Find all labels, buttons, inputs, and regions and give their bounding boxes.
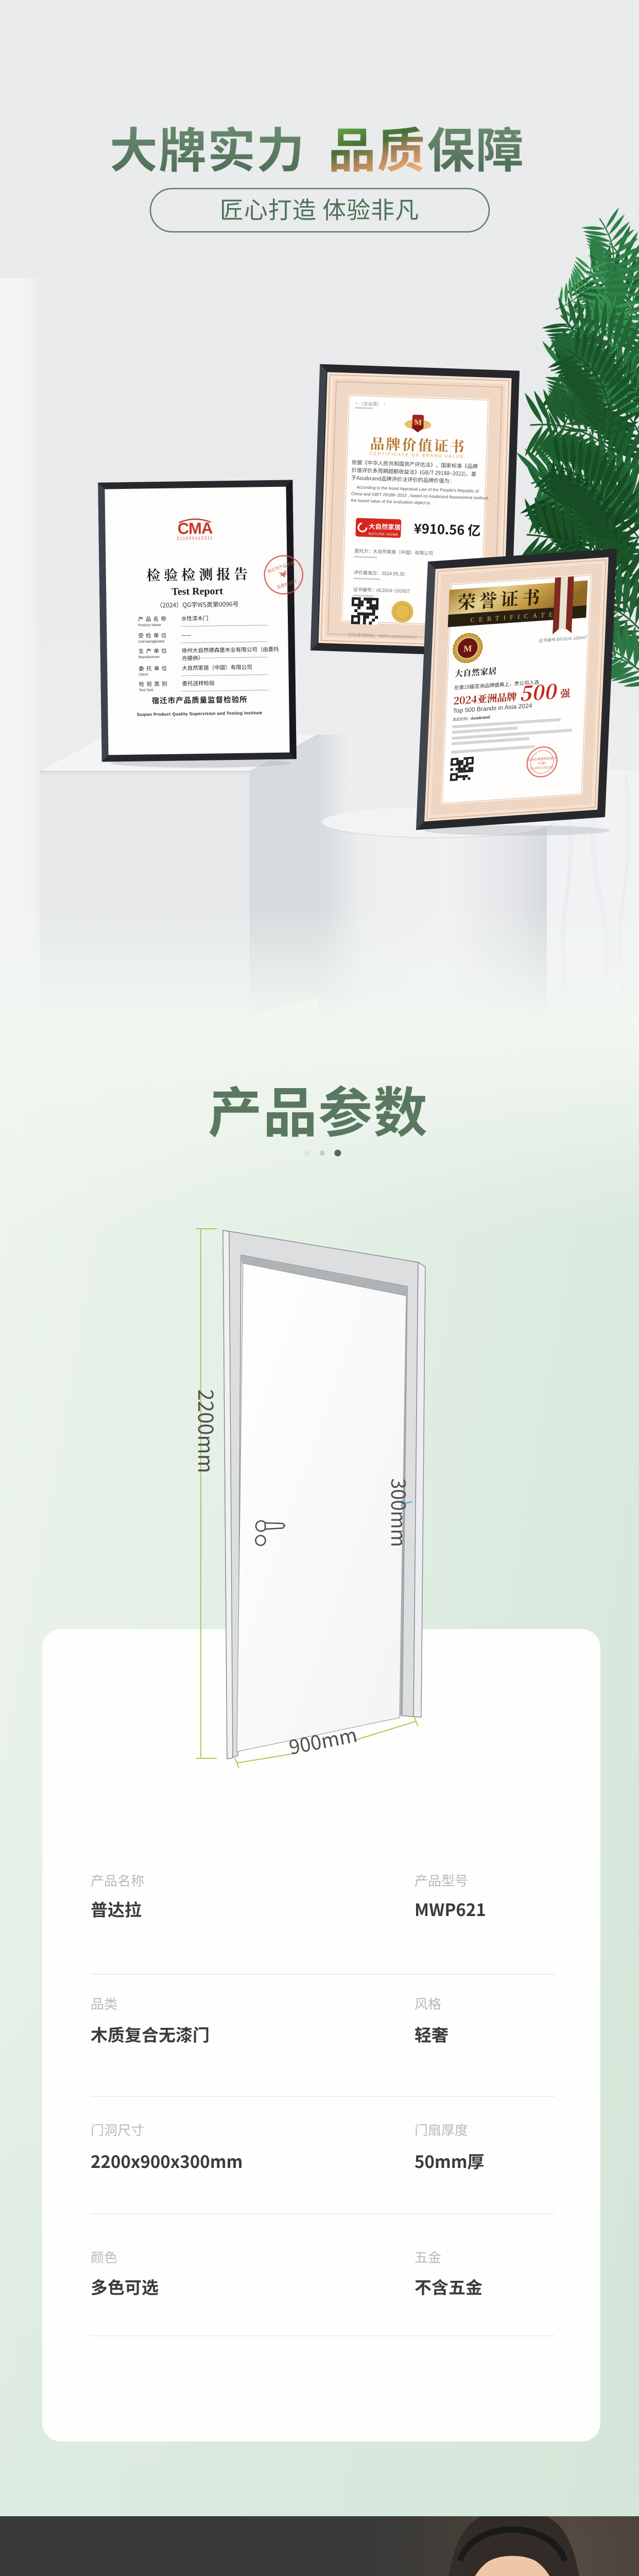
- svg-text:Unit beingtested: Unit beingtested: [139, 640, 165, 644]
- svg-text:211020112311: 211020112311: [177, 536, 213, 541]
- svg-text:Manufacturer: Manufacturer: [139, 655, 160, 659]
- svg-text:Client: Client: [139, 673, 148, 676]
- svg-text:M: M: [463, 643, 472, 654]
- svg-text:M: M: [414, 418, 422, 427]
- svg-text:Product Name: Product Name: [138, 623, 161, 628]
- svg-text:Test Sort: Test Sort: [139, 688, 153, 692]
- svg-text:CMA: CMA: [177, 519, 213, 538]
- svg-text:Test Report: Test Report: [171, 585, 223, 597]
